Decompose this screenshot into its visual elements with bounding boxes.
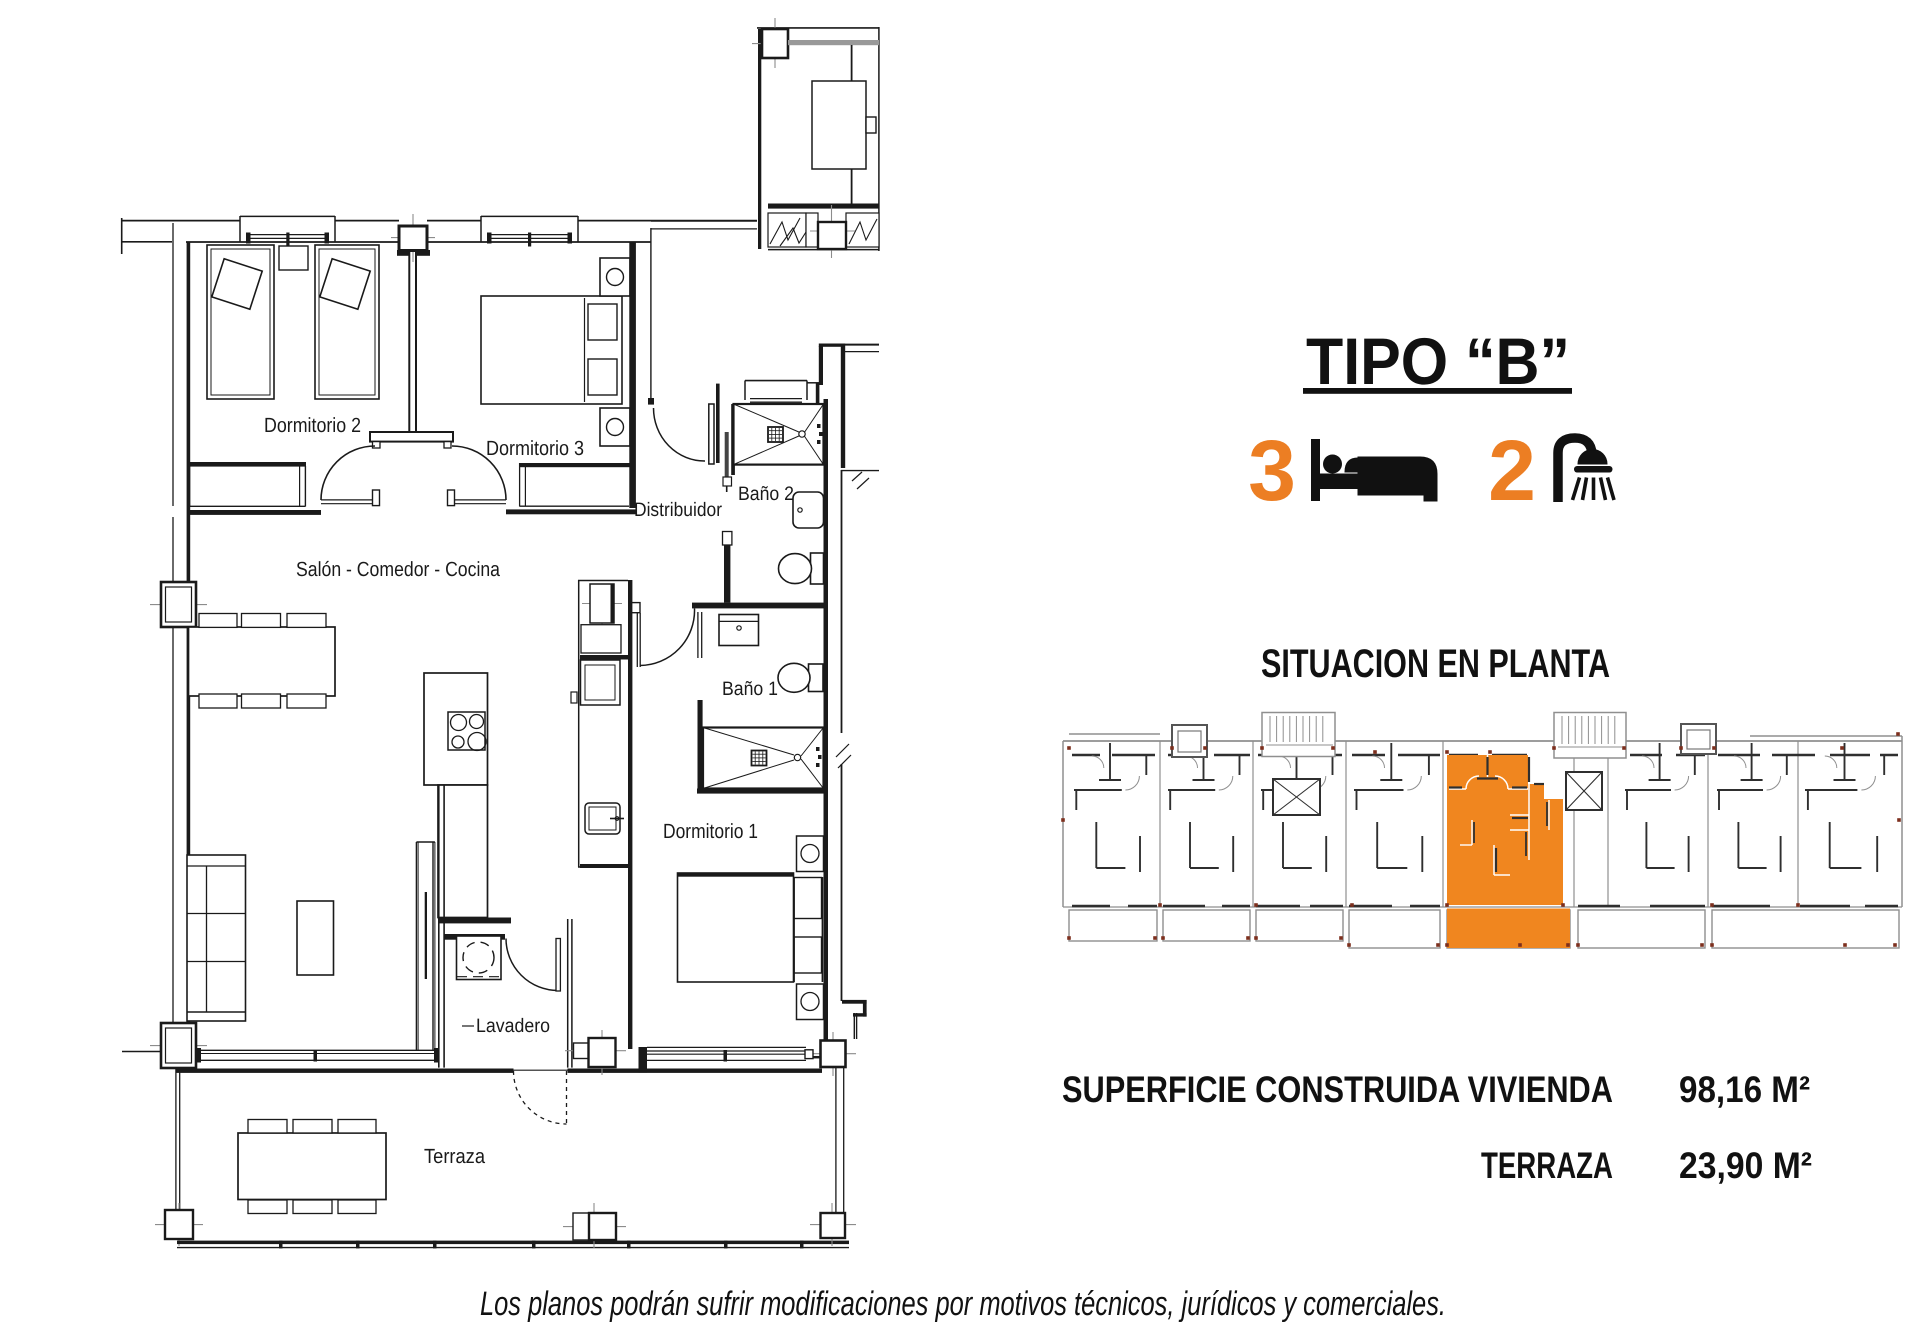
- svg-text:SITUACION EN PLANTA: SITUACION EN PLANTA: [1261, 642, 1610, 686]
- svg-text:Baño 1: Baño 1: [722, 678, 778, 700]
- svg-text:Lavadero: Lavadero: [476, 1015, 550, 1037]
- svg-text:TIPO “B”: TIPO “B”: [1306, 324, 1570, 398]
- svg-text:98,16 M²: 98,16 M²: [1679, 1069, 1810, 1110]
- svg-text:Dormitorio 2: Dormitorio 2: [264, 414, 361, 437]
- svg-text:TERRAZA: TERRAZA: [1481, 1145, 1613, 1186]
- svg-text:2: 2: [1488, 423, 1536, 519]
- svg-text:23,90 M²: 23,90 M²: [1679, 1145, 1812, 1186]
- svg-text:Salón - Comedor - Cocina: Salón - Comedor - Cocina: [296, 558, 501, 581]
- svg-text:Los planos podrán sufrir modif: Los planos podrán sufrir modificaciones …: [480, 1285, 1446, 1323]
- svg-text:Dormitorio 3: Dormitorio 3: [486, 437, 584, 460]
- svg-text:SUPERFICIE CONSTRUIDA VIVIENDA: SUPERFICIE CONSTRUIDA VIVIENDA: [1062, 1069, 1613, 1110]
- svg-text:Distribuidor: Distribuidor: [634, 499, 722, 521]
- svg-text:Terraza: Terraza: [424, 1145, 486, 1168]
- svg-text:Baño 2: Baño 2: [738, 483, 794, 505]
- svg-text:3: 3: [1248, 423, 1296, 519]
- svg-text:Dormitorio 1: Dormitorio 1: [663, 820, 758, 843]
